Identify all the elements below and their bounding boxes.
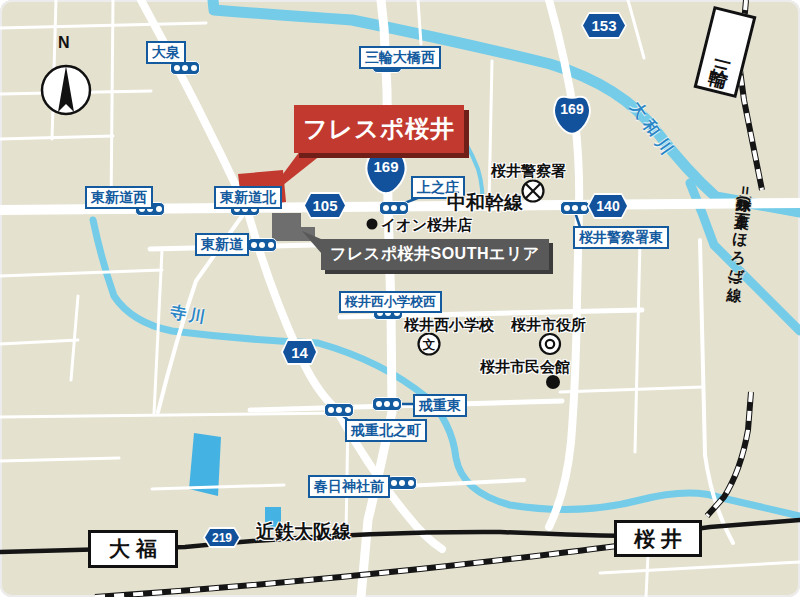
- elementary-school-label: 桜井西小学校: [404, 316, 494, 335]
- school-symbol-char: 文: [421, 337, 437, 354]
- route-shield-14: 14: [281, 339, 318, 365]
- traffic-light-icon: [379, 201, 409, 215]
- frespo-sakurai-banner: フレスポ桜井: [294, 105, 464, 153]
- police-label: 桜井警察署: [491, 162, 566, 181]
- route-shield-169: 169: [551, 94, 593, 136]
- aeon-label: イオン桜井店: [381, 216, 472, 235]
- station-sakurai: 桜 井: [614, 520, 702, 557]
- route153-road: [549, 0, 579, 527]
- civic-hall-label: 桜井市民会館: [480, 358, 570, 377]
- intersection-higashi-shindo-kita: 東新道北: [214, 186, 282, 209]
- intersection-oizumi: 大泉: [146, 41, 186, 64]
- compass-icon: [42, 66, 90, 114]
- traffic-light-icon: [324, 403, 354, 417]
- intersection-kaiju-kitanocho: 戒重北之町: [345, 419, 427, 442]
- intersection-kasuga-jinja-mae: 春日神社前: [308, 475, 390, 498]
- access-map: N 大泉 三輪大橋西 東新道西 東新道北 上之庄 東新道 桜井西小学校西 戒重東…: [0, 0, 800, 597]
- civic-hall-dot-marker: [546, 375, 560, 389]
- route-shield-219: 219: [203, 527, 241, 548]
- traffic-light-icon: [387, 476, 417, 490]
- police-station-icon: [523, 181, 544, 202]
- route-shield-105: 105: [303, 192, 347, 219]
- aeon-dot-marker: [367, 219, 378, 230]
- intersection-miwa-ohashi-nishi: 三輪大橋西: [359, 46, 441, 69]
- city-hall-label: 桜井市役所: [511, 316, 586, 335]
- intersection-sakurai-nishi-shogakko-nishi: 桜井西小学校西: [339, 291, 442, 313]
- frespo-south-banner: フレスポ桜井SOUTHエリア: [321, 239, 549, 270]
- traffic-light-icon: [372, 397, 402, 411]
- oizumi-road: [141, 0, 442, 549]
- trunk-road-label: 中和幹線: [447, 190, 523, 216]
- route-shield-140: 140: [587, 193, 629, 219]
- traffic-light-icon: [247, 238, 277, 252]
- intersection-kaiju-higashi: 戒重東: [413, 394, 467, 417]
- traffic-light-icon: [560, 201, 590, 215]
- intersection-sakurai-keisatsusho-higashi: 桜井警察署東: [573, 226, 669, 249]
- intersection-higashi-shindo: 東新道: [195, 233, 249, 256]
- kintetsu-line-label: 近鉄大阪線: [256, 519, 351, 545]
- route-shield-153: 153: [581, 12, 627, 39]
- route-shield-169: 169: [363, 150, 409, 196]
- intersection-higashi-shindo-nishi: 東新道西: [85, 186, 153, 209]
- station-daifuku: 大 福: [88, 530, 178, 568]
- city-hall-icon: [540, 334, 560, 354]
- compass-north-label: N: [58, 34, 70, 52]
